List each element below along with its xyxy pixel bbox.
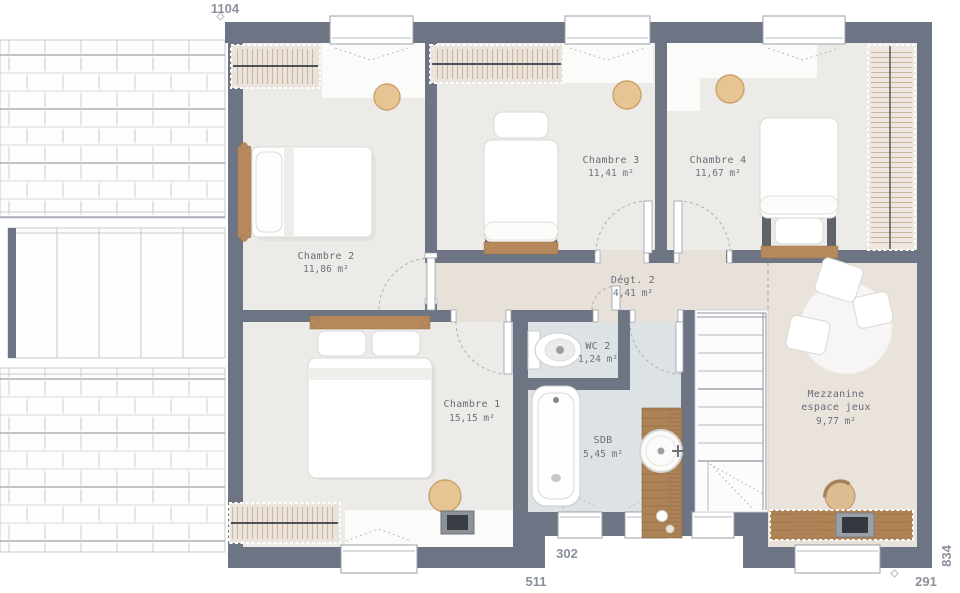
label-chambre-3: Chambre 3 xyxy=(583,155,640,166)
bathtub xyxy=(532,386,580,506)
pouf-chambre-2 xyxy=(374,84,400,110)
area-mezzanine: 9,77 m² xyxy=(816,416,856,427)
label-chambre-4: Chambre 4 xyxy=(690,155,747,166)
area-chambre-3: 11,41 m² xyxy=(588,168,634,179)
alcove-chambre-4b xyxy=(667,43,700,111)
roof-texture-lower xyxy=(0,368,225,552)
area-chambre-1: 15,15 m² xyxy=(449,413,495,424)
label-mezzanine-sub: espace jeux xyxy=(801,402,871,413)
area-chambre-2: 11,86 m² xyxy=(303,264,349,275)
label-wc: WC 2 xyxy=(585,341,610,352)
alcove-chambre-2 xyxy=(322,43,425,98)
alcove-chambre-3 xyxy=(563,43,653,83)
tv-console xyxy=(441,511,474,534)
wardrobe-chambre-1 xyxy=(229,503,340,543)
bed-chambre-2 xyxy=(238,143,376,242)
roof-texture-upper xyxy=(0,40,225,218)
dim-marker-right xyxy=(891,570,898,577)
label-mezzanine: Mezzanine xyxy=(808,389,865,400)
floor-plan-drawing: Chambre 2 11,86 m² Chambre 3 11,41 m² Ch… xyxy=(0,0,960,593)
pouf-chambre-1 xyxy=(429,480,461,512)
bed-chambre-1 xyxy=(308,316,436,480)
area-wc: 1,24 m² xyxy=(578,354,618,365)
dim-right-height: 834 xyxy=(939,544,954,566)
dim-recess-width: 302 xyxy=(556,546,578,561)
dim-bottom-left: 511 xyxy=(526,574,547,589)
vanity-sink xyxy=(640,408,684,538)
wardrobe-chambre-3 xyxy=(430,45,563,83)
pouf-chambre-4 xyxy=(716,75,744,103)
area-degagement: 4,41 m² xyxy=(613,288,653,299)
label-sdb: SDB xyxy=(594,435,613,446)
label-chambre-1: Chambre 1 xyxy=(444,399,501,410)
toilet xyxy=(528,331,581,369)
wardrobe-chambre-4 xyxy=(868,45,915,250)
floor-plan-page: Chambre 2 11,86 m² Chambre 3 11,41 m² Ch… xyxy=(0,0,960,593)
pouf-chambre-3 xyxy=(613,81,641,109)
area-sdb: 5,45 m² xyxy=(583,449,623,460)
wardrobe-chambre-2 xyxy=(231,45,320,88)
dim-bottom-right: 291 xyxy=(915,574,937,589)
staircase xyxy=(695,310,768,512)
deck-texture xyxy=(8,228,225,358)
label-chambre-2: Chambre 2 xyxy=(298,251,355,262)
label-degagement: Dégt. 2 xyxy=(611,274,655,286)
desk xyxy=(770,510,913,540)
dim-top-width: 1104 xyxy=(211,1,240,16)
alcove-chambre-1 xyxy=(345,510,513,547)
area-chambre-4: 11,67 m² xyxy=(695,168,741,179)
bed-chambre-3 xyxy=(484,112,558,254)
